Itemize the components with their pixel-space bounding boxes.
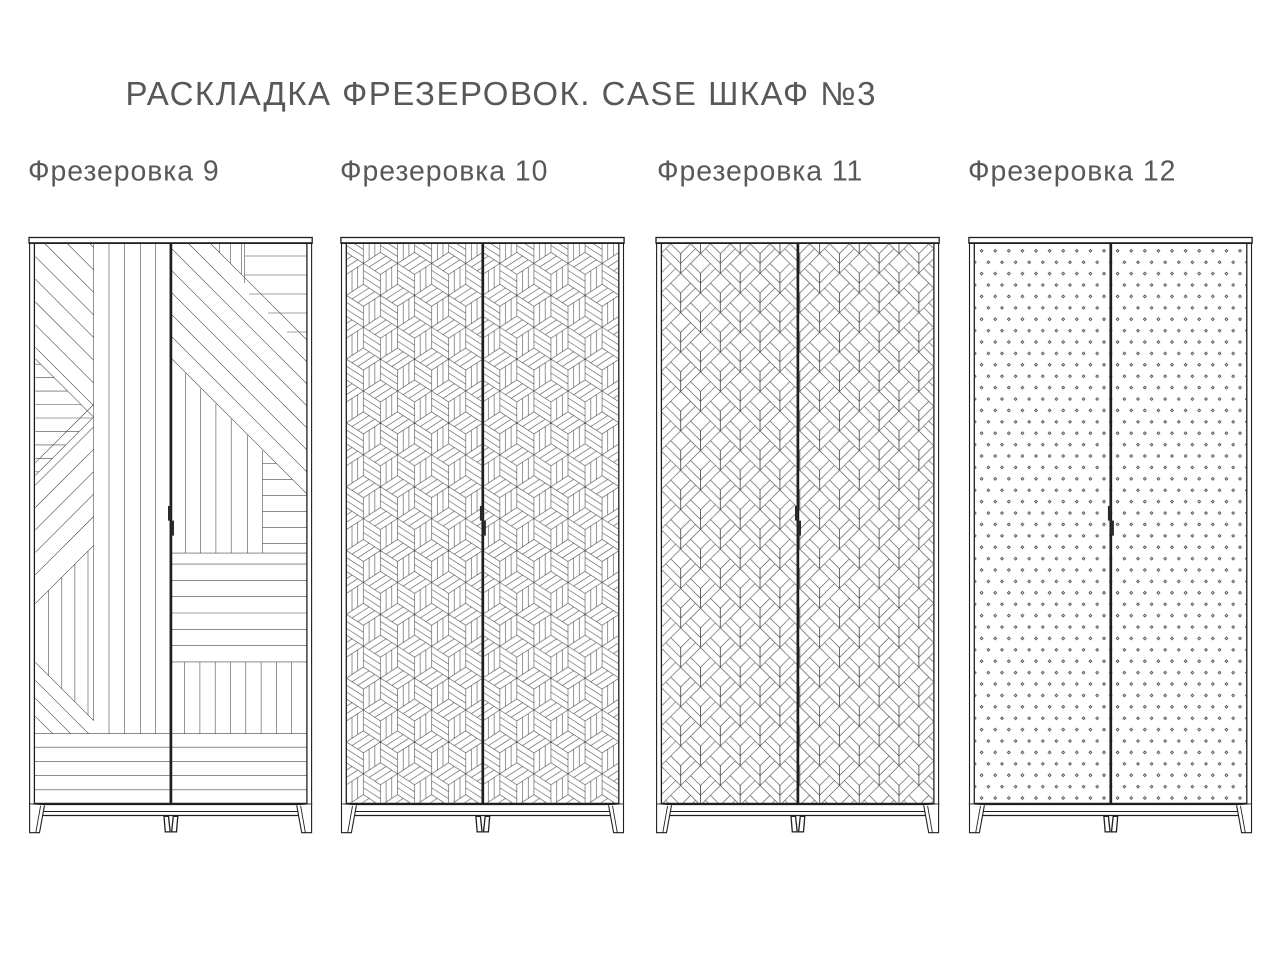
svg-text:Фрезеровка 9: Фрезеровка 9: [28, 155, 220, 187]
svg-text:РАСКЛАДКА ФРЕЗЕРОВОК. CASE ШКА: РАСКЛАДКА ФРЕЗЕРОВОК. CASE ШКАФ №3: [126, 75, 878, 112]
svg-text:Фрезеровка 10: Фрезеровка 10: [340, 155, 548, 187]
svg-text:Фрезеровка 11: Фрезеровка 11: [657, 155, 863, 187]
svg-text:Фрезеровка 12: Фрезеровка 12: [968, 155, 1176, 187]
